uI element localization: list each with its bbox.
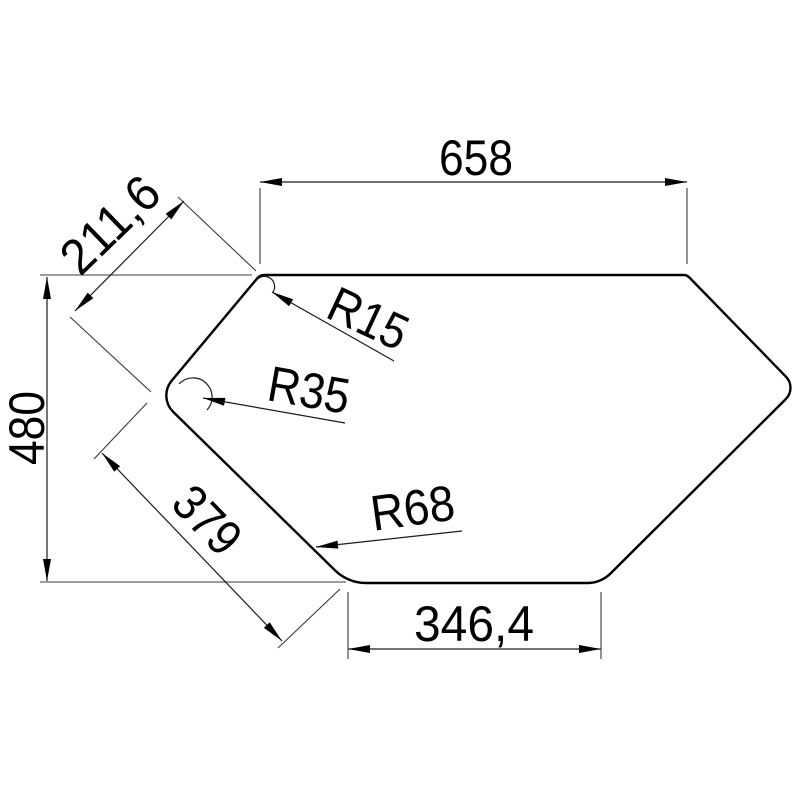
dim-overall-height-label: 480 — [0, 391, 55, 465]
dim-bottom-width-label: 346,4 — [414, 596, 534, 652]
drawing-background — [0, 0, 800, 800]
drawing-stage: 658 480 211,6 379 346,4 — [0, 0, 800, 800]
dim-top-width-label: 658 — [439, 130, 513, 186]
r68-label: R68 — [367, 475, 458, 542]
technical-drawing-canvas: 658 480 211,6 379 346,4 — [0, 0, 800, 800]
